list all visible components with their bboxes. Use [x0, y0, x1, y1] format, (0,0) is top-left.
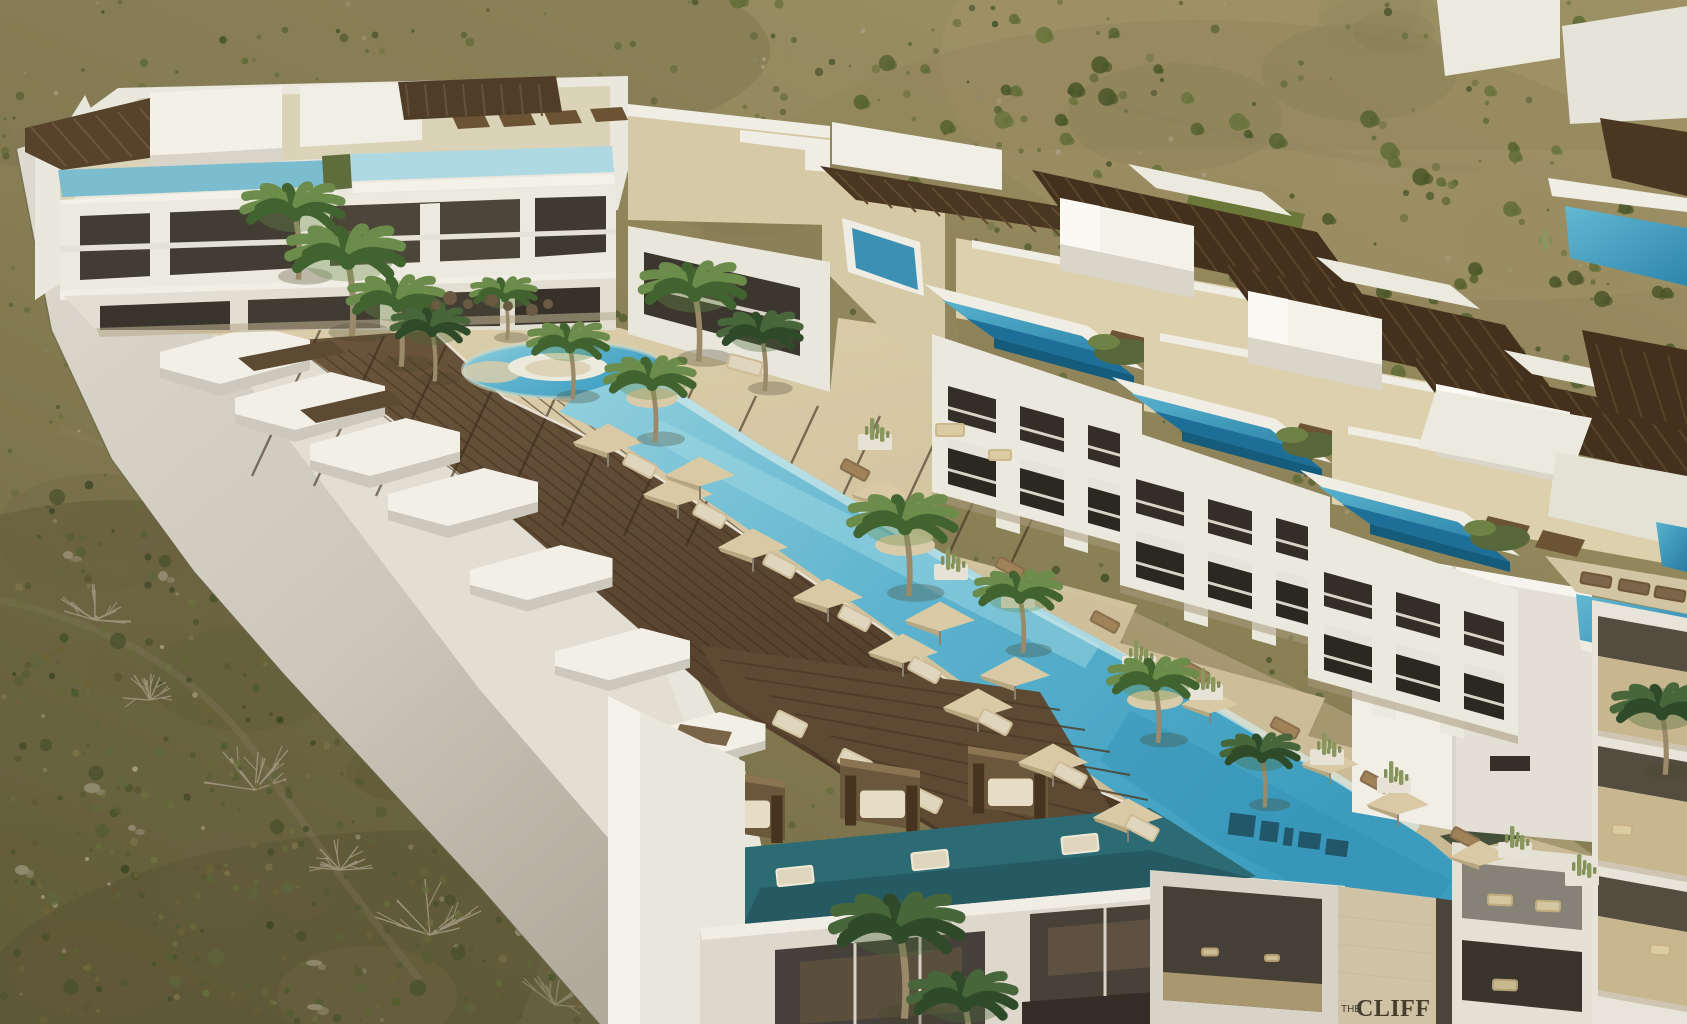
svg-text:THE: THE	[1341, 1004, 1361, 1015]
svg-text:CLIFF: CLIFF	[1356, 996, 1431, 1022]
